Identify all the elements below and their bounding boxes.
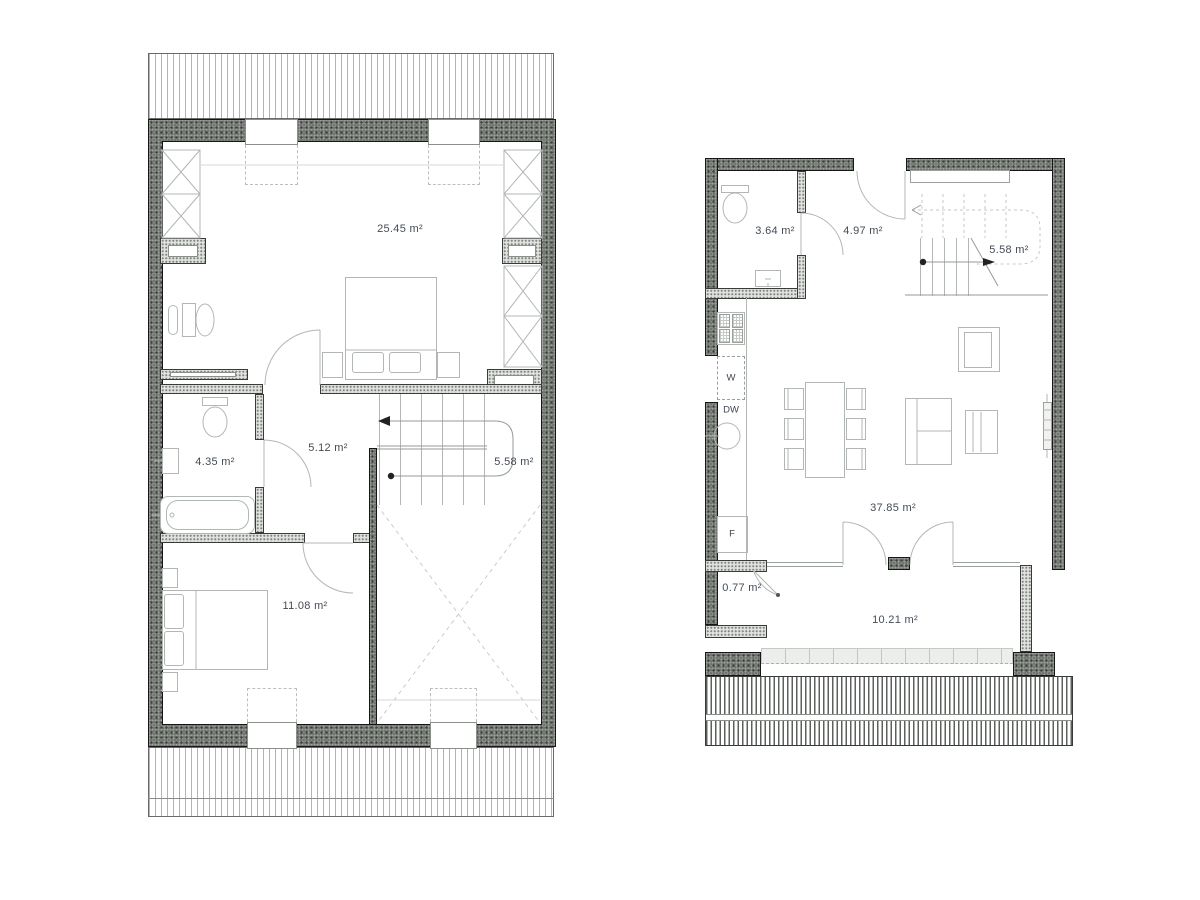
knee-wall-window	[168, 245, 198, 257]
stair-direction-arrow	[983, 258, 995, 266]
room-area-label: 0.77 m²	[722, 582, 761, 594]
radiator	[1043, 402, 1052, 450]
glass-wall	[953, 566, 1020, 567]
dormer-window	[245, 119, 298, 145]
room-area-label: 25.45 m²	[377, 223, 423, 235]
roof-hatch-bottom	[148, 747, 554, 817]
knee-wall-window	[170, 372, 236, 377]
chair	[784, 418, 804, 440]
dormer-window	[428, 119, 480, 145]
pillow	[352, 352, 384, 373]
chair	[846, 448, 866, 470]
ground-floor-plan: W DW F	[705, 158, 1075, 750]
burner	[719, 314, 730, 328]
wc-wall	[797, 255, 806, 299]
sofa	[905, 398, 952, 465]
dormer-recess	[428, 145, 480, 185]
room-area-label: 11.08 m²	[283, 600, 328, 612]
pillow	[164, 594, 184, 629]
eave-line	[148, 798, 554, 799]
glass-wall	[767, 566, 843, 567]
roof-hatch-top	[148, 53, 554, 119]
room-area-label: 3.64 m²	[755, 225, 794, 237]
partition-wall	[255, 487, 264, 533]
storage-wall	[705, 625, 767, 638]
stair-wall	[369, 448, 377, 725]
armchair-seat	[964, 332, 992, 368]
pillow	[389, 352, 421, 373]
terrace-step	[761, 648, 1013, 664]
floor-plan-canvas: 25.45 m² 4.35 m² 5.12 m² 5.58 m² 11.08 m…	[0, 0, 1200, 900]
partition-wall	[320, 384, 542, 394]
storage-wall	[705, 560, 767, 572]
room-area-label: 4.97 m²	[843, 225, 882, 237]
terrace-pier	[705, 652, 761, 676]
dormer-recess	[430, 688, 477, 722]
bathtub-inner	[166, 500, 249, 530]
pillow	[164, 631, 184, 666]
room-area-label: 4.35 m²	[195, 456, 234, 468]
desk	[182, 303, 196, 337]
room-area-label: 10.21 m²	[872, 614, 918, 626]
knee-wall-window	[508, 245, 536, 257]
dormer-recess	[247, 688, 297, 722]
washer-label: W	[727, 373, 736, 384]
nightstand	[437, 352, 460, 378]
toilet-tank	[721, 185, 749, 193]
tv-cabinet	[965, 410, 998, 454]
glass-wall	[953, 562, 1020, 563]
sink	[162, 448, 179, 474]
railing-rail-line	[706, 714, 1072, 721]
chair	[784, 388, 804, 410]
nightstand	[322, 352, 343, 378]
desk-lamp	[168, 305, 178, 335]
nightstand	[162, 568, 178, 588]
burner	[732, 314, 743, 328]
dining-table	[805, 382, 845, 478]
fridge-label: F	[729, 529, 735, 540]
room-area-label: 5.12 m²	[308, 442, 347, 454]
terrace-pier	[1013, 652, 1055, 676]
wc-wall	[797, 171, 806, 213]
toilet-tank	[202, 397, 228, 406]
chair	[846, 388, 866, 410]
attic-floor-plan: 25.45 m² 4.35 m² 5.12 m² 5.58 m² 11.08 m…	[148, 53, 556, 823]
counter-edge	[746, 298, 747, 560]
burner	[732, 329, 743, 343]
terrace-railing	[705, 676, 1073, 746]
exterior-wall-right	[1052, 158, 1065, 570]
door-mullion	[888, 557, 910, 570]
partition-wall	[160, 384, 263, 394]
dormer-window	[430, 722, 477, 749]
dormer-window	[247, 722, 297, 749]
chair	[846, 418, 866, 440]
stair-treads	[920, 238, 975, 296]
room-area-label: 5.58 m²	[989, 244, 1028, 256]
burner	[719, 329, 730, 343]
entrance-door-opening	[853, 158, 907, 171]
room-area-label: 37.85 m²	[870, 502, 916, 514]
dishwasher-label: DW	[723, 405, 739, 416]
partition-wall	[160, 533, 305, 543]
terrace-side-wall	[1020, 565, 1032, 652]
sink	[755, 270, 781, 287]
dormer-recess	[245, 145, 298, 185]
glass-wall	[767, 562, 843, 563]
wc-wall	[705, 288, 806, 299]
chair	[784, 448, 804, 470]
stair-treads	[379, 394, 487, 505]
room-area-label: 5.58 m²	[494, 456, 533, 468]
partition-wall	[255, 394, 264, 440]
nightstand	[162, 672, 178, 692]
wall-niche	[910, 170, 1010, 183]
